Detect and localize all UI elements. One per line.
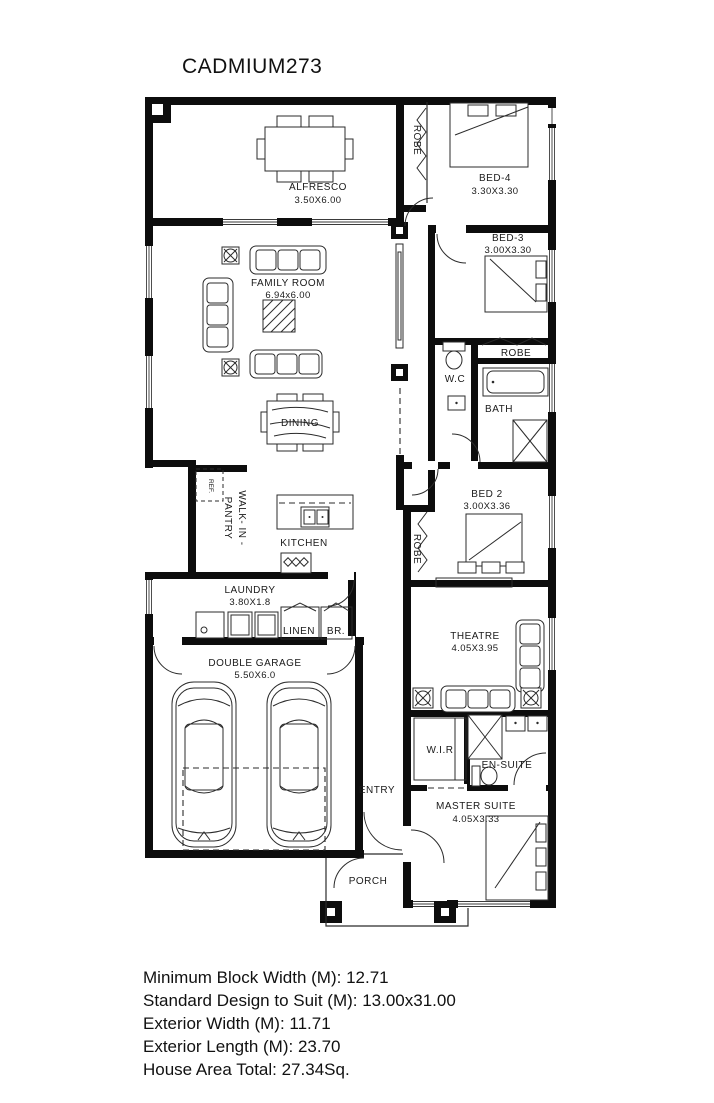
cooktop: [281, 553, 311, 573]
dims-alfresco: 3.50X6.00: [295, 195, 342, 206]
label-family: FAMILY ROOM: [251, 278, 325, 289]
kitchen-island: [277, 495, 353, 529]
dims-theatre: 4.05X3.95: [452, 643, 499, 654]
floor-plan-drawing: ALFRESCO 3.50X6.00 BED-4 3.30X3.30 ROBE …: [0, 0, 714, 1103]
bed4-bed: [450, 103, 528, 167]
label-robe-bed2: ROBE: [411, 534, 422, 564]
theatre-sofa-right: [516, 620, 544, 692]
theatre-speaker-right: [521, 688, 541, 708]
theatre-speaker-left: [413, 688, 433, 708]
label-laundry: LAUNDRY: [224, 585, 275, 596]
label-ensuite: EN-SUITE: [482, 760, 533, 771]
shower-bath: [513, 420, 547, 462]
ensuite-shower: [468, 715, 502, 759]
spec-exterior-width: Exterior Width (M): 11.71: [143, 1012, 456, 1035]
dims-garage: 5.50X6.0: [234, 670, 275, 681]
label-pantry-line2: PANTRY: [222, 497, 233, 540]
label-dining: DINING: [281, 418, 319, 429]
label-bed4: BED-4: [479, 173, 511, 184]
family-sofa-top: [250, 246, 326, 274]
label-fridge: REF.: [207, 479, 214, 493]
label-theatre: THEATRE: [450, 631, 499, 642]
spec-exterior-length: Exterior Length (M): 23.70: [143, 1035, 456, 1058]
car-left: [172, 682, 236, 847]
floor-plan-page: CADMIUM273: [0, 0, 714, 1103]
label-bed2: BED 2: [471, 489, 502, 500]
dims-bed2: 3.00X3.36: [464, 501, 511, 512]
bed3-bed: [485, 256, 547, 312]
wc-toilet: [443, 342, 465, 369]
label-alfresco: ALFRESCO: [289, 182, 347, 193]
family-lamp-bottom: [222, 359, 239, 376]
family-sofa-left: [203, 278, 233, 352]
label-kitchen: KITCHEN: [280, 538, 327, 549]
dims-master: 4.05X3.33: [453, 814, 500, 825]
label-br: BR.: [327, 626, 345, 637]
laundry-appliances: [196, 612, 278, 638]
ensuite-vanity: [506, 716, 547, 731]
label-wir: W.I.R: [427, 745, 454, 756]
sliding-door: [396, 244, 403, 458]
family-sofa-bottom: [250, 350, 322, 378]
spec-block: Minimum Block Width (M): 12.71 Standard …: [143, 966, 456, 1081]
label-pantry-line1: WALK- IN -: [236, 490, 247, 545]
alfresco-table: [257, 116, 353, 182]
label-linen: LINEN: [283, 626, 315, 637]
label-porch: PORCH: [349, 876, 388, 887]
label-master: MASTER SUITE: [436, 801, 516, 812]
master-bed: [486, 816, 548, 900]
dims-bed4: 3.30X3.30: [472, 186, 519, 197]
label-wc: W.C: [445, 374, 465, 385]
label-garage: DOUBLE GARAGE: [208, 658, 301, 669]
label-bath: BATH: [485, 404, 513, 415]
spec-house-area: House Area Total: 27.34Sq.: [143, 1058, 456, 1081]
label-robe-bed4: ROBE: [411, 125, 422, 155]
dims-bed3: 3.00X3.30: [485, 245, 532, 256]
dims-laundry: 3.80X1.8: [229, 597, 270, 608]
label-robe-bath: ROBE: [501, 348, 531, 359]
spec-standard-design: Standard Design to Suit (M): 13.00x31.00: [143, 989, 456, 1012]
family-rug: [263, 300, 295, 332]
label-entry: ENTRY: [359, 785, 395, 796]
dims-family: 6.94x6.00: [265, 290, 310, 301]
spec-min-block-width: Minimum Block Width (M): 12.71: [143, 966, 456, 989]
car-right: [267, 682, 331, 847]
family-lamp-top: [222, 247, 239, 264]
label-bed3: BED-3: [492, 233, 524, 244]
theatre-sofa-bottom: [441, 686, 515, 712]
bed2-bed: [458, 514, 524, 573]
bathtub: [483, 368, 548, 396]
wc-basin: [448, 396, 465, 410]
